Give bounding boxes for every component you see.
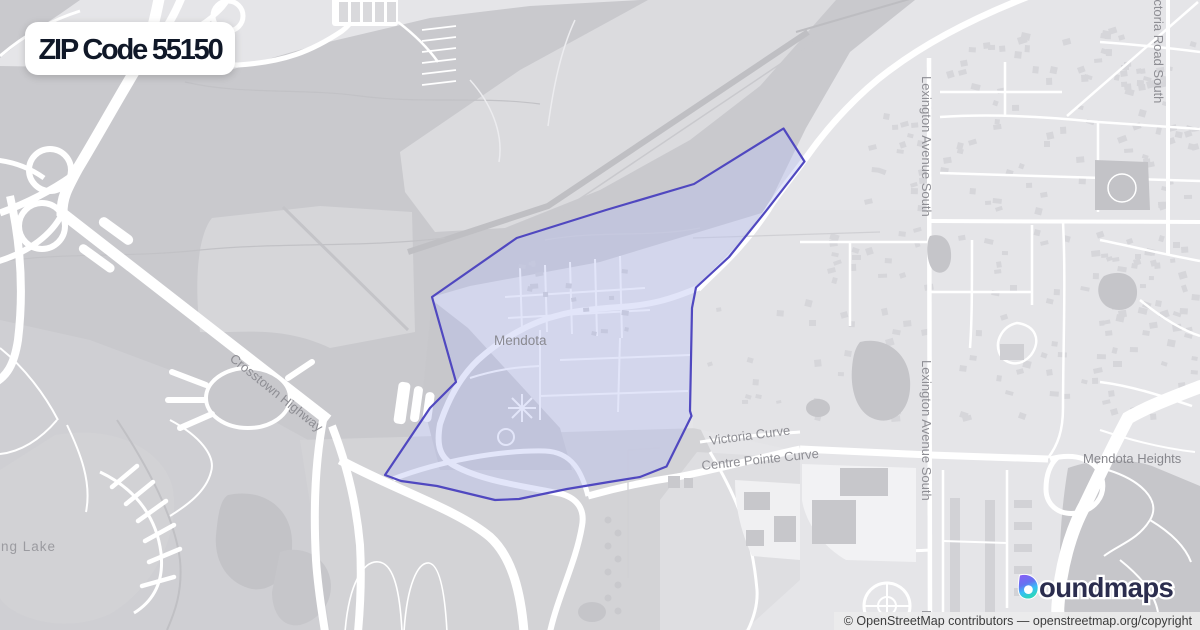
svg-text:Mendota Heights: Mendota Heights [1083,451,1182,466]
svg-text:oundmaps: oundmaps [1039,572,1174,603]
svg-text:Victoria Road South: Victoria Road South [1151,0,1166,103]
svg-text:Lexington Avenue South: Lexington Avenue South [919,76,934,217]
svg-text:Snelling Lake: Snelling Lake [0,539,56,554]
svg-text:Mendota: Mendota [494,333,547,348]
svg-text:Lexington Avenue South: Lexington Avenue South [919,360,934,501]
